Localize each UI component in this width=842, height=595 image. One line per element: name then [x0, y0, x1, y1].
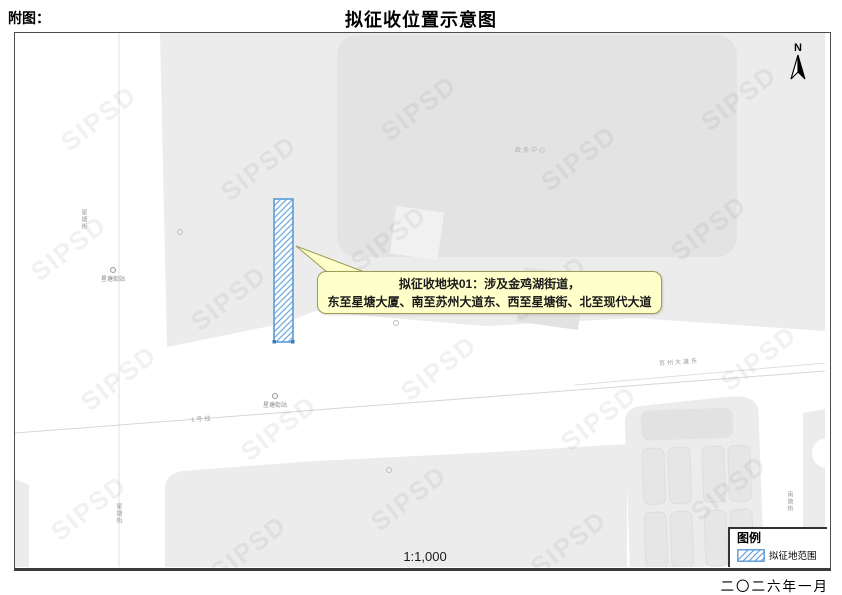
road-label-xingtang-street-south: 星塘街 — [114, 503, 123, 524]
page-title: 拟征收位置示意图 — [0, 6, 842, 32]
legend-item: 拟征地范围 — [737, 548, 821, 562]
date-label: 二〇二六年一月 — [14, 575, 831, 595]
north-arrow-icon — [788, 53, 808, 81]
poi-marker — [393, 320, 399, 326]
north-arrow: N — [787, 43, 809, 86]
metro-station-label: 星塘街站 — [263, 403, 287, 409]
legend-parcel-swatch-icon — [737, 549, 765, 562]
north-label: N — [787, 43, 809, 53]
parcel-callout: 拟征收地块01：涉及金鸡湖街道， 东至星塘大厦、南至苏州大道东、西至星塘街、北至… — [317, 271, 662, 314]
map-scale: 1:1,000 — [365, 549, 485, 564]
callout-line-1: 拟征收地块01：涉及金鸡湖街道， — [399, 275, 580, 293]
metro-station-icon — [272, 393, 278, 399]
block-southwest-sliver — [15, 479, 29, 567]
parcel-acquisition-area — [273, 199, 295, 344]
metro-station-label: 星塘街站 — [101, 277, 125, 283]
building-small-tilted-light — [390, 206, 444, 260]
callout-line-2: 东至星塘大厦、南至苏州大道东、西至星塘街、北至现代大道 — [327, 293, 651, 311]
legend-title: 图例 — [737, 531, 821, 546]
road-label-nanshi-street: 南施街 — [785, 491, 794, 512]
metro-line-1-label: 1号线 — [191, 413, 213, 423]
building-label-government-center: 政务中心 — [515, 145, 547, 154]
metro-station-west: 星塘街站 — [101, 267, 125, 283]
map-frame: SIPSD SIPSD SIPSD SIPSD SIPSD SIPSD SIPS… — [14, 32, 831, 571]
legend-item-label: 拟征地范围 — [769, 548, 817, 562]
page: 附图： 拟征收位置示意图 — [0, 0, 842, 595]
metro-station-icon — [110, 267, 116, 273]
map-canvas: SIPSD SIPSD SIPSD SIPSD SIPSD SIPSD SIPS… — [15, 33, 827, 567]
metro-station-main: 星塘街站 — [263, 393, 287, 409]
poi-marker — [386, 467, 392, 473]
road-label-xingtang-street-north: 星塘街 — [79, 209, 88, 230]
poi-marker — [177, 229, 183, 235]
legend: 图例 拟征地范围 — [728, 527, 827, 567]
